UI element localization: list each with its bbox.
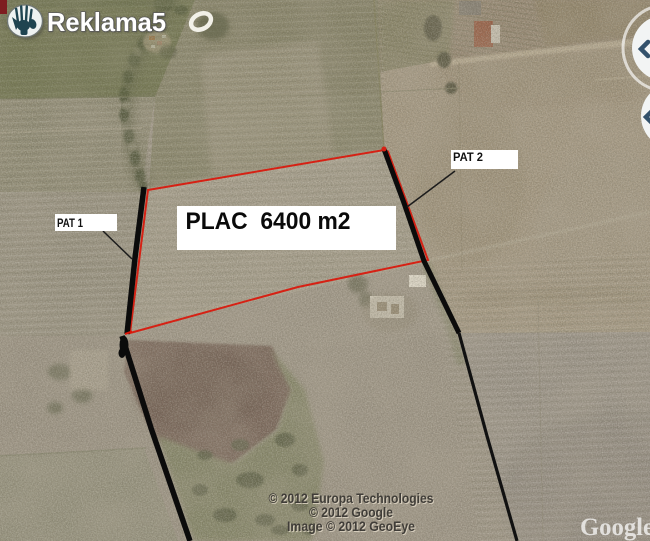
svg-text:© 2012 Europa Technologies: © 2012 Europa Technologies [269,491,434,506]
svg-text:Google: Google [580,514,650,541]
svg-text:PLAC 6400 m2: PLAC 6400 m2 [186,208,351,235]
svg-text:PAT 2: PAT 2 [453,150,483,164]
svg-text:Image © 2012 GeoEye: Image © 2012 GeoEye [287,519,415,534]
svg-text:Reklama5: Reklama5 [47,7,166,37]
svg-text:© 2012 Google: © 2012 Google [309,505,393,520]
svg-text:PAT 1: PAT 1 [57,218,84,230]
